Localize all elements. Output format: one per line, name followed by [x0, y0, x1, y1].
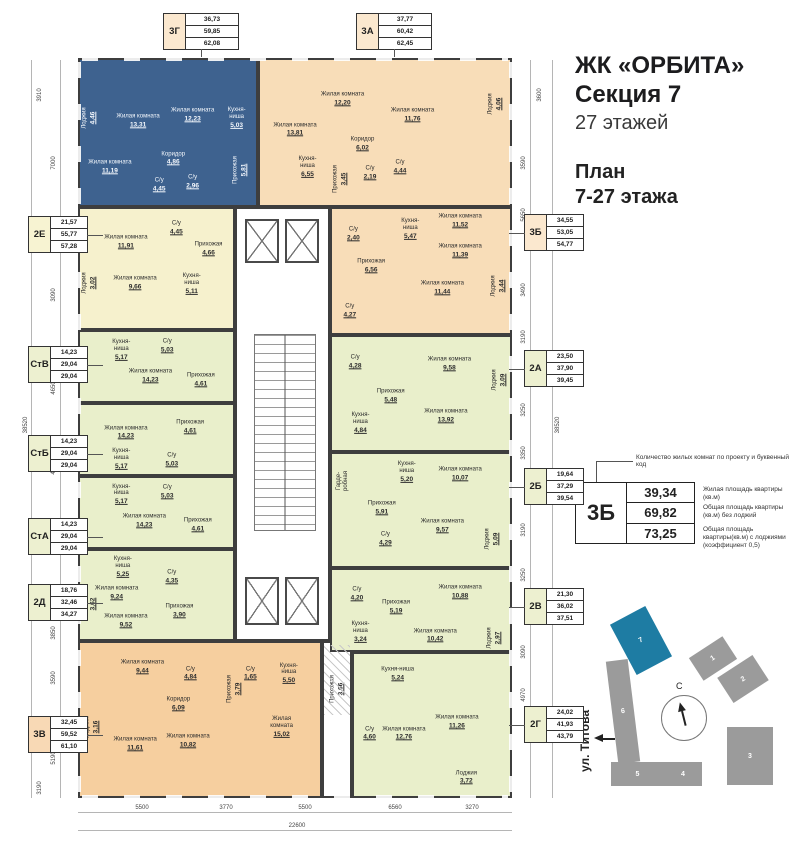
- callout-2А[interactable]: 2А23,5037,9039,45: [524, 350, 584, 387]
- room-area: 5,17: [112, 462, 130, 469]
- room-name: Кухня- ниша: [398, 461, 416, 475]
- legend-desc-living: Жилая площадь квартиры (кв.м): [703, 486, 800, 502]
- legend-note: Количество жилых комнат по проекту и бук…: [636, 454, 796, 468]
- callout-2Д[interactable]: 2Д18,7632,4634,27: [28, 584, 88, 621]
- dimension-value: 3600: [537, 88, 543, 101]
- room-area: 11,61: [114, 744, 157, 751]
- minimap-section-3[interactable]: 3: [727, 727, 773, 785]
- room-name: Жилая комната: [421, 518, 464, 525]
- apartment-region-3Б[interactable]: Жилая комната11,52С/у2,40Кухня- ниша5,47…: [330, 207, 512, 335]
- room-area: 4,28: [349, 362, 362, 369]
- callout-values: 21,3036,0237,51: [547, 589, 583, 624]
- dimension-value: 3590: [51, 671, 57, 684]
- room-area: 3,79: [234, 675, 241, 703]
- room-area: 6,09: [167, 704, 191, 711]
- room-area: 4,45: [153, 185, 166, 192]
- room-label: С/у4,20: [351, 586, 364, 601]
- apartment-code: 2А: [525, 351, 547, 386]
- staircase-icon: [254, 334, 316, 531]
- room-area: 5,25: [114, 570, 132, 577]
- dimension-value: 38520: [555, 417, 561, 434]
- area-value: 54,77: [547, 239, 583, 250]
- room-area: 6,56: [357, 266, 385, 273]
- dimension-value: 3910: [37, 88, 43, 101]
- room-area: 3,44: [498, 275, 505, 296]
- callout-values: 37,7760,4262,45: [379, 14, 431, 49]
- apartment-code: 2Г: [525, 707, 547, 742]
- room-name: Прихожая: [195, 242, 223, 249]
- street-direction-arrow-icon: [594, 734, 616, 743]
- room-name: С/у: [363, 726, 376, 733]
- dim-line-left-outer: [31, 60, 32, 798]
- room-area: 9,44: [121, 668, 164, 675]
- room-label: Жилая комната12,23: [171, 107, 214, 122]
- room-name: Кухня- ниша: [114, 556, 132, 570]
- room-label: Жилая комната9,44: [121, 660, 164, 675]
- room-name: Жилая комната: [435, 714, 478, 721]
- room-area: 5,03: [161, 492, 174, 499]
- room-area: 11,39: [438, 251, 481, 258]
- room-label: Прихожая5,19: [382, 599, 410, 614]
- area-value: 29,04: [51, 448, 87, 460]
- room-area: 4,06: [495, 93, 502, 114]
- room-label: Кухня- ниша5,03: [228, 107, 246, 129]
- area-value: 34,27: [51, 609, 87, 620]
- room-area: 4,29: [379, 539, 392, 546]
- callout-values: 24,0241,9343,79: [547, 707, 583, 742]
- room-label: Прихожая6,56: [357, 258, 385, 273]
- room-name: Прихожая: [166, 603, 194, 610]
- room-label: Кухня- ниша5,47: [401, 218, 419, 240]
- room-name: С/у: [343, 303, 356, 310]
- area-value: 29,04: [51, 460, 87, 471]
- room-name: Кухня-ниша: [381, 666, 414, 673]
- legend-value-total: 69,82: [627, 503, 694, 523]
- room-label: Кухня- ниша6,55: [298, 156, 316, 178]
- room-label: Прихожая5,48: [377, 388, 405, 403]
- room-name: С/у: [161, 484, 174, 491]
- area-value: 19,64: [547, 469, 583, 481]
- dimension-value: 3190: [521, 330, 527, 343]
- room-area: 9,57: [421, 526, 464, 533]
- room-area: 10,88: [438, 593, 481, 600]
- area-value: 60,42: [379, 26, 431, 38]
- room-name: Жилая комната: [114, 736, 157, 743]
- dimension-value: 38520: [23, 417, 29, 434]
- room-label: Кухня-ниша5,24: [381, 666, 414, 681]
- apartment-code: 3Б: [525, 215, 547, 250]
- room-name: Жилая комната: [424, 408, 467, 415]
- room-name: С/у: [165, 453, 178, 460]
- room-name: С/у: [161, 338, 174, 345]
- room-name: Коридор: [351, 136, 375, 143]
- apartment-code: 3В: [29, 717, 51, 752]
- apartment-region-3Г[interactable]: Лоджия4,46Жилая комната13,31Жилая комнат…: [78, 58, 258, 207]
- room-area: 4,86: [161, 159, 185, 166]
- room-label: С/у5,03: [161, 338, 174, 353]
- room-name: Жилая комната: [321, 91, 364, 98]
- room-area: 4,61: [187, 381, 215, 388]
- room-name: С/у: [170, 220, 183, 227]
- area-value: 37,51: [547, 613, 583, 624]
- area-value: 39,54: [547, 493, 583, 504]
- room-area: 9,58: [428, 364, 471, 371]
- room-name: С/у: [351, 586, 364, 593]
- callout-values: 14,2329,0429,04: [51, 519, 87, 554]
- area-value: 29,04: [51, 359, 87, 371]
- callout-leader-line: [87, 735, 103, 736]
- elevator-icon: [245, 577, 279, 625]
- room-area: 5,48: [377, 396, 405, 403]
- room-area: 3,72: [456, 778, 477, 785]
- room-area: 5,19: [382, 607, 410, 614]
- room-name: Прихожая: [226, 675, 233, 703]
- room-label: Кухня- ниша4,84: [351, 412, 369, 434]
- room-name: С/у: [349, 354, 362, 361]
- callout-3В[interactable]: 3В32,4559,5261,10: [28, 716, 88, 753]
- room-name: Кухня- ниша: [298, 156, 316, 170]
- area-value: 29,04: [51, 371, 87, 382]
- dimension-value: 3090: [521, 645, 527, 658]
- apartment-region-2Б[interactable]: Гарде- робнаяКухня- ниша5,20Жилая комнат…: [330, 452, 512, 568]
- room-name: Кухня- ниша: [183, 273, 201, 287]
- minimap-section-4[interactable]: 4: [664, 762, 702, 786]
- area-value: 61,10: [51, 741, 87, 752]
- callout-leader-line: [394, 49, 395, 57]
- room-area: 4,44: [394, 168, 407, 175]
- apartment-region-СтВ[interactable]: Кухня- ниша5,17С/у5,03Жилая комната14,23…: [78, 330, 235, 403]
- room-label: Жилая комната10,88: [438, 585, 481, 600]
- room-name: Жилая комната: [104, 614, 147, 621]
- room-label: Лоджия4,06: [487, 93, 502, 114]
- room-label: Лоджия3,72: [456, 770, 477, 785]
- room-area: 4,27: [343, 311, 356, 318]
- area-value: 36,73: [186, 14, 238, 26]
- room-area: 5,47: [401, 232, 419, 239]
- room-name: С/у: [153, 177, 166, 184]
- room-area: 3,90: [166, 611, 194, 618]
- dimension-value: 5500: [135, 805, 148, 811]
- room-name: Жилая комната: [129, 368, 172, 375]
- room-area: 11,26: [435, 722, 478, 729]
- apartment-region-3В[interactable]: Жилая комната9,44С/у4,84Коридор6,09Лоджи…: [78, 641, 322, 798]
- area-value: 18,76: [51, 585, 87, 597]
- elevator-icon: [285, 577, 319, 625]
- callout-leader-line: [201, 49, 202, 57]
- callout-2Б[interactable]: 2Б19,6437,2939,54: [524, 468, 584, 505]
- callout-leader-line: [87, 603, 103, 604]
- room-name: Кухня- ниша: [401, 218, 419, 232]
- room-area: 5,20: [398, 476, 416, 483]
- minimap-section-5[interactable]: 5: [611, 762, 664, 786]
- room-label: Кухня-ниша5,50: [273, 662, 304, 684]
- apartment-region-2Д[interactable]: Кухня- ниша5,25Жилая комната9,24С/у4,35Л…: [78, 549, 235, 641]
- area-value: 14,23: [51, 436, 87, 448]
- room-label: Жилая комната14,23: [104, 425, 147, 440]
- room-area: 5,17: [112, 354, 130, 361]
- room-area: 14,23: [129, 376, 172, 383]
- room-name: Жилая комната: [104, 235, 147, 242]
- legend-value-total-loggia: 73,25: [627, 524, 694, 543]
- room-label: С/у5,03: [165, 453, 178, 468]
- callout-values: 21,5755,7757,28: [51, 217, 87, 252]
- callout-3Г[interactable]: 3Г36,7359,8562,08: [163, 13, 239, 50]
- room-name: Кухня- ниша: [351, 621, 369, 635]
- room-name: Кухня- ниша: [112, 448, 130, 462]
- room-area: 4,84: [184, 674, 197, 681]
- room-area: 4,45: [170, 228, 183, 235]
- room-area: 10,07: [438, 474, 481, 481]
- apartment-region-СтБ[interactable]: Жилая комната14,23Прихожая4,61Кухня- ниш…: [78, 403, 235, 476]
- room-name: С/у: [379, 531, 392, 538]
- room-area: 4,46: [89, 107, 96, 128]
- floors-count: 27 этажей: [575, 110, 790, 136]
- room-area: 12,23: [171, 115, 214, 122]
- dimension-value: 3250: [521, 568, 527, 581]
- callout-3А[interactable]: 3А37,7760,4262,45: [356, 13, 432, 50]
- callout-leader-line: [87, 454, 103, 455]
- room-label: Прихожая4,61: [184, 517, 212, 532]
- room-label: С/у4,84: [184, 666, 197, 681]
- room-label: Жилая комната10,07: [438, 466, 481, 481]
- room-label: Жилая комната14,23: [129, 368, 172, 383]
- room-label: С/у4,45: [170, 220, 183, 235]
- dimension-value: 3090: [51, 288, 57, 301]
- area-value: 59,85: [186, 26, 238, 38]
- room-label: Жилая комната14,23: [123, 513, 166, 528]
- room-area: 12,76: [382, 734, 425, 741]
- room-label: Прихожая4,61: [176, 419, 204, 434]
- room-area: 5,03: [161, 346, 174, 353]
- area-value: 43,79: [547, 731, 583, 742]
- plan-word: План: [575, 160, 790, 185]
- room-label: Прихожая3,45: [332, 165, 347, 193]
- room-name: Жилая комната: [428, 356, 471, 363]
- room-name: Жилая комната: [421, 281, 464, 288]
- room-area: 5,81: [240, 156, 247, 184]
- room-area: 4,60: [363, 734, 376, 741]
- room-area: 11,91: [104, 243, 147, 250]
- room-label: Жилая комната11,52: [438, 214, 481, 229]
- callout-leader-line: [509, 607, 525, 608]
- room-name: Прихожая: [184, 517, 212, 524]
- room-area: 10,82: [166, 741, 209, 748]
- callout-СтВ[interactable]: СтВ14,2329,0429,04: [28, 346, 88, 383]
- room-label: Прихожая4,66: [195, 242, 223, 257]
- room-label: Жилая комната11,19: [88, 160, 131, 175]
- room-label: Гарде- робная: [336, 471, 350, 491]
- room-label: С/у4,45: [153, 177, 166, 192]
- apartment-region-СтА[interactable]: Кухня- ниша5,17С/у5,03Жилая комната14,23…: [78, 476, 235, 549]
- room-name: Жилая комната: [438, 585, 481, 592]
- room-label: С/у1,65: [244, 666, 257, 681]
- room-name: Жилая комната: [382, 726, 425, 733]
- apartment-region-2В[interactable]: С/у4,20Прихожая5,19Жилая комната10,88Кух…: [330, 568, 512, 652]
- area-value: 32,46: [51, 597, 87, 609]
- room-name: Жилая комната: [438, 214, 481, 221]
- apartment-code: СтА: [29, 519, 51, 554]
- room-label: Жилая комната9,58: [428, 356, 471, 371]
- area-value: 39,45: [547, 375, 583, 386]
- area-value: 37,29: [547, 481, 583, 493]
- dimension-value: 3590: [521, 156, 527, 169]
- area-value: 37,90: [547, 363, 583, 375]
- room-label: С/у4,27: [343, 303, 356, 318]
- room-area: 4,61: [176, 427, 204, 434]
- room-area: 9,66: [113, 283, 156, 290]
- room-name: Прихожая: [357, 258, 385, 265]
- room-area: 5,03: [228, 122, 246, 129]
- dim-line-bottom-outer: [78, 830, 512, 831]
- room-name: Прихожая: [232, 156, 239, 184]
- room-area: 5,11: [183, 288, 201, 295]
- room-name: Лоджия: [485, 528, 492, 549]
- room-area: 2,40: [347, 234, 360, 241]
- room-area: 13,92: [424, 416, 467, 423]
- apartment-region-2Г[interactable]: Кухня-ниша5,24С/у4,60Жилая комната12,76Ж…: [352, 652, 512, 798]
- room-name: Лоджия: [81, 272, 88, 293]
- area-value: 36,02: [547, 601, 583, 613]
- floorplan-page: { "title":{"project":"ЖК «ОРБИТА»","sect…: [0, 0, 800, 856]
- room-name: Лоджия: [492, 369, 499, 390]
- dimension-value: 3850: [51, 626, 57, 639]
- room-area: 12,20: [321, 99, 364, 106]
- room-name: Жилая комната: [166, 733, 209, 740]
- dim-line-right: [530, 60, 531, 798]
- room-label: Жилая комната9,24: [95, 586, 138, 601]
- room-label: Жилая комната11,26: [435, 714, 478, 729]
- apartment-code: 3Г: [164, 14, 186, 49]
- room-name: Гарде- робная: [336, 471, 350, 491]
- stair-elevator-core: [235, 207, 330, 641]
- room-area: 11,19: [88, 168, 131, 175]
- room-name: Кухня- ниша: [351, 412, 369, 426]
- room-label: Кухня- ниша5,17: [112, 483, 130, 505]
- room-area: 14,23: [104, 433, 147, 440]
- room-label: С/у4,35: [165, 570, 178, 585]
- room-name: Жилая комната: [116, 113, 159, 120]
- room-label: Кухня- ниша5,17: [112, 448, 130, 470]
- room-name: Прихожая: [187, 373, 215, 380]
- minimap-section-6[interactable]: 6: [606, 659, 640, 764]
- room-label: Прихожая5,91: [368, 500, 396, 515]
- room-area: 4,84: [351, 427, 369, 434]
- dimension-value: 4650: [51, 381, 57, 394]
- elevator-icon: [245, 219, 279, 263]
- room-area: 11,76: [391, 115, 434, 122]
- callout-2Е[interactable]: 2Е21,5755,7757,28: [28, 216, 88, 253]
- room-area: 4,61: [184, 525, 212, 532]
- apartment-code: СтБ: [29, 436, 51, 471]
- room-name: Прихожая: [332, 165, 339, 193]
- room-label: Кухня- ниша5,25: [114, 556, 132, 578]
- room-label: Жилая комната10,82: [166, 733, 209, 748]
- room-label: Жилая комната13,31: [116, 113, 159, 128]
- section-name: Секция 7: [575, 81, 790, 110]
- dimension-value: 4970: [521, 688, 527, 701]
- area-value: 53,05: [547, 227, 583, 239]
- room-label: Жилая комната11,61: [114, 736, 157, 751]
- room-name: Прихожая: [382, 599, 410, 606]
- room-name: Кухня- ниша: [228, 107, 246, 121]
- room-area: 3,24: [351, 636, 369, 643]
- room-name: Жилая комната: [104, 425, 147, 432]
- room-area: 13,81: [273, 130, 316, 137]
- callout-values: 19,6437,2939,54: [547, 469, 583, 504]
- area-value: 62,08: [186, 38, 238, 49]
- room-label: Кухня- ниша3,24: [351, 621, 369, 643]
- callout-values: 23,5037,9039,45: [547, 351, 583, 386]
- area-value: 23,50: [547, 351, 583, 363]
- room-label: Жилая комната13,81: [273, 122, 316, 137]
- callout-2Г[interactable]: 2Г24,0241,9343,79: [524, 706, 584, 743]
- callout-СтБ[interactable]: СтБ14,2329,0429,04: [28, 435, 88, 472]
- callout-leader-line: [509, 487, 525, 488]
- room-label: С/у4,44: [394, 160, 407, 175]
- room-name: С/у: [184, 666, 197, 673]
- area-value: 21,57: [51, 217, 87, 229]
- callout-3Б[interactable]: 3Б34,5553,0554,77: [524, 214, 584, 251]
- apartment-region-2А[interactable]: С/у4,28Жилая комната9,58Лоджия3,09Прихож…: [330, 335, 512, 452]
- room-name: Жилая комната: [438, 243, 481, 250]
- room-area: 6,02: [351, 144, 375, 151]
- room-name: Жилая комната: [171, 107, 214, 114]
- room-label: Жилая комната11,76: [391, 107, 434, 122]
- apartment-code: СтВ: [29, 347, 51, 382]
- room-name: Коридор: [167, 697, 191, 704]
- room-label: Жилая комната11,91: [104, 235, 147, 250]
- room-label: Прихожая5,81: [232, 156, 247, 184]
- dimension-value: 5190: [51, 751, 57, 764]
- room-name: Кухня-ниша: [273, 662, 304, 676]
- room-label: Лоджия5,09: [485, 528, 500, 549]
- project-name: ЖК «ОРБИТА»: [575, 52, 790, 81]
- callout-2В[interactable]: 2В21,3036,0237,51: [524, 588, 584, 625]
- title-block: ЖК «ОРБИТА» Секция 7 27 этажей План 7-27…: [575, 52, 790, 210]
- apartment-region-3А[interactable]: Жилая комната13,81Жилая комната12,20Жила…: [258, 58, 512, 207]
- legend-leader-line: [596, 461, 633, 483]
- area-value: 14,23: [51, 519, 87, 531]
- room-name: Кухня- ниша: [112, 339, 130, 353]
- room-name: Жилая комната: [123, 513, 166, 520]
- room-name: Жилая комната: [414, 628, 457, 635]
- room-area: 4,35: [165, 578, 178, 585]
- room-label: Жилая комната9,52: [104, 614, 147, 629]
- area-value: 29,04: [51, 531, 87, 543]
- dimension-value: 22600: [289, 823, 306, 829]
- callout-СтА[interactable]: СтА14,2329,0429,04: [28, 518, 88, 555]
- area-value: 14,23: [51, 347, 87, 359]
- callout-leader-line: [509, 369, 525, 370]
- room-area: 5,09: [492, 528, 499, 549]
- callout-leader-line: [87, 365, 103, 366]
- room-area: 3,02: [89, 272, 96, 293]
- room-area: 11,52: [438, 222, 481, 229]
- callout-leader-line: [509, 233, 525, 234]
- room-area: 9,24: [95, 593, 138, 600]
- apartment-region-2Е[interactable]: Жилая комната11,91С/у4,45Прихожая4,66Лод…: [78, 207, 235, 330]
- room-area: 15,02: [262, 731, 300, 738]
- room-area: 5,03: [165, 460, 178, 467]
- room-label: Коридор6,09: [167, 697, 191, 712]
- room-label: Жилая комната15,02: [262, 716, 300, 738]
- room-label: С/у4,60: [363, 726, 376, 741]
- room-label: Лоджия3,44: [490, 275, 505, 296]
- dimension-value: 3190: [37, 781, 43, 794]
- room-label: С/у4,28: [349, 354, 362, 369]
- room-name: С/у: [394, 160, 407, 167]
- legend-desc-total: Общая площадь квартиры (кв.м) без лоджий: [703, 504, 800, 520]
